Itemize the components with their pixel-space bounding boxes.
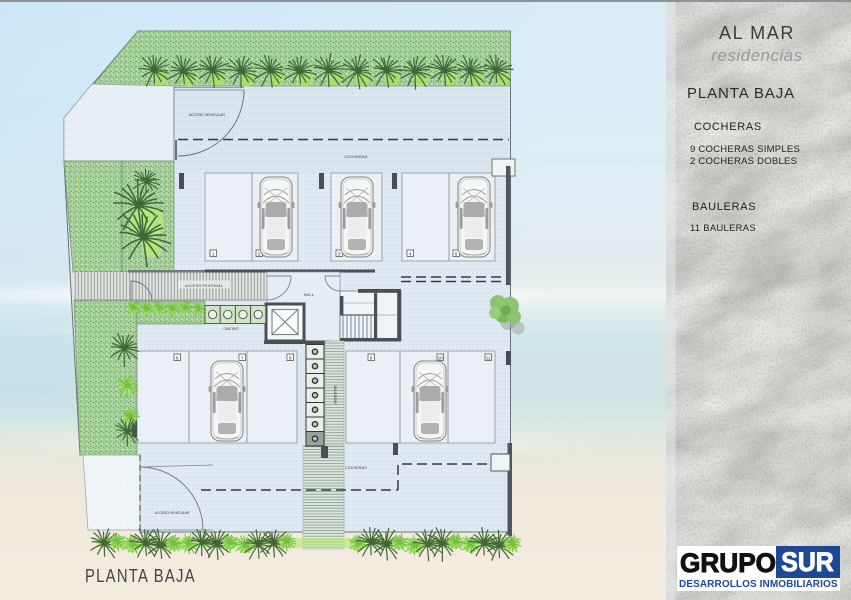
svg-text:HALL: HALL xyxy=(304,293,315,297)
svg-text:COCHERAS: COCHERAS xyxy=(345,466,367,470)
svg-text:3: 3 xyxy=(338,251,341,256)
svg-text:4: 4 xyxy=(409,251,412,256)
svg-text:5: 5 xyxy=(455,251,458,256)
svg-text:10: 10 xyxy=(438,355,444,360)
svg-text:ACCESO PEATONAL: ACCESO PEATONAL xyxy=(185,284,223,288)
svg-text:ACCESO VEHICULAR: ACCESO VEHICULAR xyxy=(155,511,190,515)
svg-text:CANTERO: CANTERO xyxy=(223,327,239,331)
svg-text:1: 1 xyxy=(212,251,215,256)
svg-text:8: 8 xyxy=(289,355,292,360)
svg-text:BAULERAS: BAULERAS xyxy=(333,386,337,405)
svg-text:7: 7 xyxy=(241,355,244,360)
svg-text:11: 11 xyxy=(486,355,491,360)
svg-text:9: 9 xyxy=(370,355,373,360)
svg-text:6: 6 xyxy=(176,355,179,360)
svg-text:COCHERAS: COCHERAS xyxy=(344,155,367,159)
svg-text:ACCESO VEHICULAR: ACCESO VEHICULAR xyxy=(189,113,225,117)
